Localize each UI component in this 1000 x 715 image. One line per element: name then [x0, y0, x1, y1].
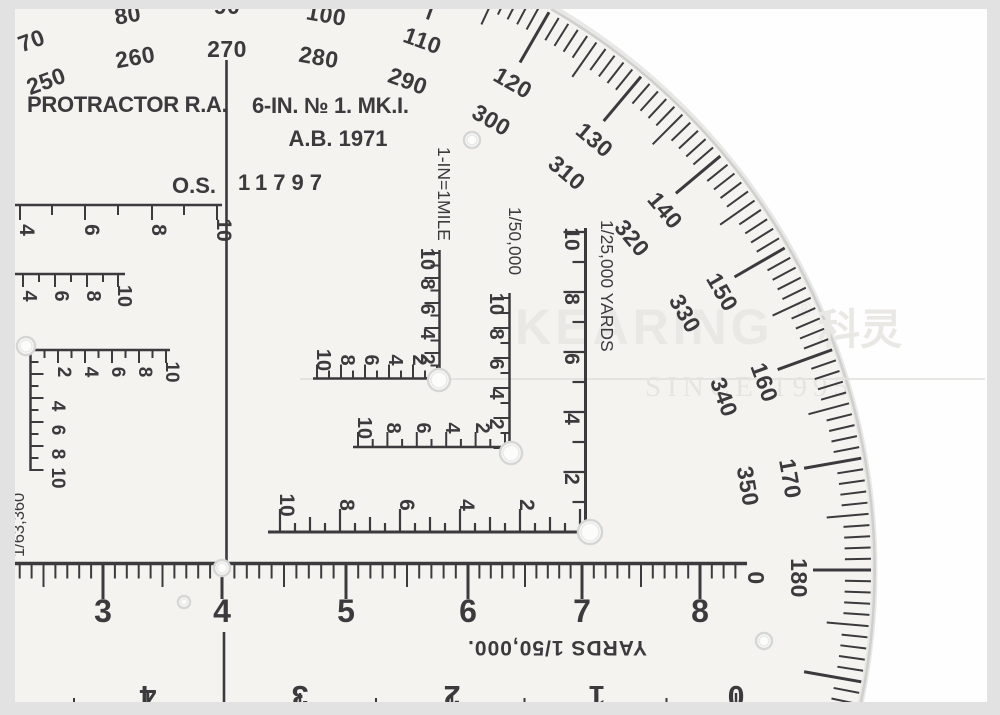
scale-50000-v-number: 6 — [485, 358, 507, 369]
edge-scale-2-number: 10 — [113, 285, 135, 307]
degree-label-outer-180: 180 — [786, 558, 812, 598]
scale-50000-h-number: 4 — [441, 422, 463, 434]
scale-63360-v-number: 10 — [47, 467, 68, 488]
scale-50000-v-number: 8 — [485, 328, 507, 339]
scale-25000-v-number: 4 — [560, 413, 583, 425]
scale-63360-h-number: 4 — [80, 367, 101, 378]
bottom-ruler-number: 3 — [94, 593, 112, 629]
degree-label-inner-0: 0 — [743, 571, 769, 584]
scale-25000-label: 1/25,000 YARDS — [597, 220, 617, 352]
edge-scale-2-number: 4 — [18, 290, 40, 302]
photo-area: KEARING®科灵SINCE 199570250802609027010028… — [10, 0, 987, 712]
edge-scale-1-number: 6 — [80, 224, 103, 236]
bottom-ruler-unit-label: YARDS 1/50,000. — [467, 636, 647, 659]
degree-tick-182 — [845, 592, 871, 593]
scale-63360-v-number: 6 — [47, 425, 68, 436]
bottom-ruler-number: 5 — [337, 593, 355, 629]
scale-50000-h-number: 8 — [382, 422, 404, 433]
bottom-ruler-number: 7 — [573, 593, 591, 629]
scale-25000-v-number: 2 — [560, 473, 583, 485]
degree-tick-178 — [845, 548, 871, 549]
bottom-ruler-number: 6 — [459, 593, 477, 629]
scale-63360-h-number: 8 — [134, 367, 155, 378]
edge-scale-1-number: 4 — [15, 224, 38, 236]
scale-50000-h-number: 6 — [412, 422, 434, 433]
scale-mile-v-number: 4 — [416, 328, 438, 340]
model-label: 6-IN. № 1. MK.I. — [252, 93, 409, 118]
scale-mile-v-number: 6 — [416, 303, 438, 314]
scale-50000-h-number: 2 — [471, 422, 493, 433]
year-label: A.B. 1971 — [288, 126, 387, 151]
edge-scale-1-number: 8 — [147, 224, 170, 236]
os-prefix: O.S. — [172, 173, 216, 198]
scale-50000-h-number: 10 — [353, 417, 375, 439]
maker-label: PROTRACTOR R.A. — [27, 92, 227, 117]
scale-25000-v-number: 10 — [560, 227, 583, 250]
scale-mile-v-number: 8 — [416, 278, 438, 289]
scale-50000-label: 1/50,000 — [505, 207, 525, 275]
degree-tick-183 — [844, 602, 870, 603]
scale-mile-h-number: 4 — [384, 354, 406, 366]
scale-25000-h-number: 10 — [275, 493, 298, 516]
scale-63360-h-number: 10 — [161, 361, 182, 382]
punched-hole — [178, 596, 190, 608]
degree-tick-177 — [844, 536, 870, 537]
scale-mile-h-number: 10 — [312, 349, 334, 371]
scale-mile-h-number: 8 — [336, 354, 358, 365]
scale-25000-h-number: 4 — [455, 499, 478, 511]
scale-63360-h-number: 6 — [107, 367, 128, 378]
scale-mile-h-number: 2 — [408, 354, 430, 365]
scale-25000-h-number: 2 — [515, 499, 538, 511]
photo-frame: KEARING®科灵SINCE 199570250802609027010028… — [0, 0, 1000, 715]
protractor-scene: KEARING®科灵SINCE 199570250802609027010028… — [0, 0, 1000, 715]
edge-scale-1-number: 10 — [212, 218, 235, 241]
bottom-ruler-number: 8 — [691, 593, 709, 629]
degree-label-inner-270: 270 — [207, 36, 247, 62]
scale-50000-v-number: 4 — [485, 388, 507, 400]
scale-mile-v-number: 10 — [416, 248, 438, 270]
edge-scale-2-number: 8 — [82, 290, 104, 301]
scale-63360-v-number: 8 — [47, 449, 68, 460]
scale-25000-v-number: 6 — [560, 353, 583, 365]
scale-25000-v-number: 8 — [560, 293, 583, 305]
scale-mile-label: 1-IN=1MILE — [434, 147, 454, 241]
bottom-ruler-number: 4 — [213, 593, 231, 629]
scale-25000-h-number: 8 — [335, 499, 358, 511]
serial-number: 11797 — [238, 170, 328, 195]
scale-25000-h-number: 6 — [395, 499, 418, 511]
watermark-brand-cjk: 科灵 — [818, 306, 902, 353]
scale-63360-v-number: 4 — [47, 401, 68, 412]
scale-50000-v-number: 10 — [485, 293, 507, 315]
scale-63360-h-number: 2 — [53, 367, 74, 378]
scale-mile-h-number: 6 — [360, 354, 382, 365]
edge-scale-2-number: 6 — [50, 290, 72, 301]
